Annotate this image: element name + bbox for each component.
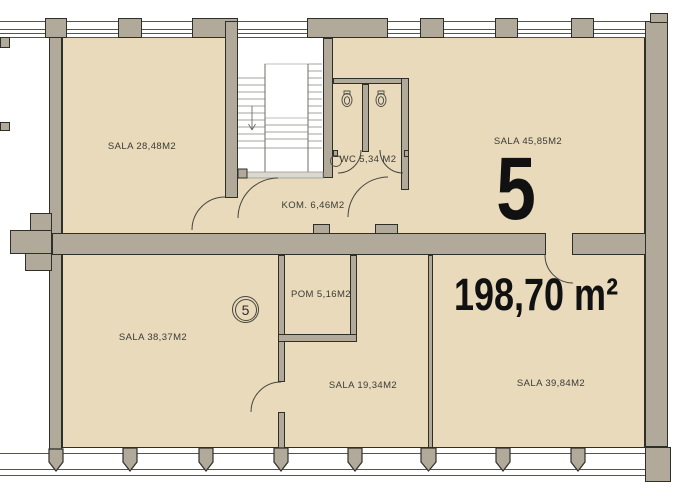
- facade-pier: [118, 18, 142, 38]
- room-label-pom: POM 5,16M2: [291, 289, 351, 300]
- wc-door-jamb: [333, 150, 338, 157]
- pillar-tooth: [571, 448, 585, 471]
- pillar-tooth: [123, 448, 137, 471]
- room-label-kom: KOM. 6,46M2: [281, 200, 344, 211]
- facade-pier: [571, 18, 594, 38]
- window-line: [0, 469, 670, 470]
- facade-pier: [495, 18, 518, 38]
- unit-marker-number: 5: [242, 302, 250, 318]
- partition-wall: [428, 255, 433, 448]
- room-label-sala-1934: SALA 19,34M2: [329, 380, 397, 391]
- window-line: [0, 475, 670, 476]
- left-wall-protrusion: [30, 213, 52, 231]
- floor-plan: SALA 28,48M2 SALA 45,85M2 WC 5,34 M2 KOM…: [0, 0, 691, 496]
- room-label-sala-3837: SALA 38,37M2: [119, 332, 187, 343]
- wc-top-wall: [333, 78, 409, 84]
- facade-pier: [45, 18, 67, 38]
- right-wall-bottom-step: [645, 447, 671, 482]
- right-exterior-wall: [645, 21, 668, 447]
- room-label-sala-3984: SALA 39,84M2: [517, 378, 585, 389]
- central-wall-tab: [375, 224, 398, 234]
- stairwell-right-wall: [323, 38, 333, 178]
- pillar-tooth: [199, 448, 213, 471]
- right-wall-top-step: [650, 13, 668, 23]
- wc-divider-wall: [362, 84, 369, 152]
- wc-right-wall: [401, 78, 409, 190]
- room-label-sala-2848: SALA 28,48M2: [108, 141, 176, 152]
- left-wall-stub: [0, 37, 10, 48]
- pillar-tooth: [348, 448, 362, 471]
- pillar-tooth: [421, 448, 436, 471]
- unit-entrance-door-gap: [545, 233, 573, 255]
- pillar-teeth: [49, 448, 585, 471]
- pom-left-wall: [278, 255, 285, 382]
- facade-pier: [420, 18, 444, 38]
- wc-door-jamb: [404, 150, 409, 157]
- pillar-tooth: [496, 448, 510, 471]
- stairwell-void: [238, 38, 323, 172]
- unit-number: 5: [496, 144, 536, 233]
- pom-right-wall: [350, 255, 357, 342]
- unit-total-area: 198,70 m²: [454, 272, 618, 317]
- unit-marker-badge: 5: [232, 296, 259, 323]
- stairwell-left-wall: [225, 21, 238, 198]
- left-wall-stub: [0, 122, 10, 131]
- room-label-wc: WC 5,34 M2: [340, 154, 397, 165]
- central-wall-tab: [313, 224, 330, 234]
- facade-pier: [307, 18, 388, 38]
- pom-bottom-wall: [278, 334, 357, 342]
- left-wall-protrusion: [10, 230, 52, 254]
- window-line: [0, 453, 670, 454]
- pillar-tooth: [274, 448, 288, 471]
- left-wall-protrusion: [25, 253, 52, 271]
- pom-left-wall-lower: [278, 412, 285, 450]
